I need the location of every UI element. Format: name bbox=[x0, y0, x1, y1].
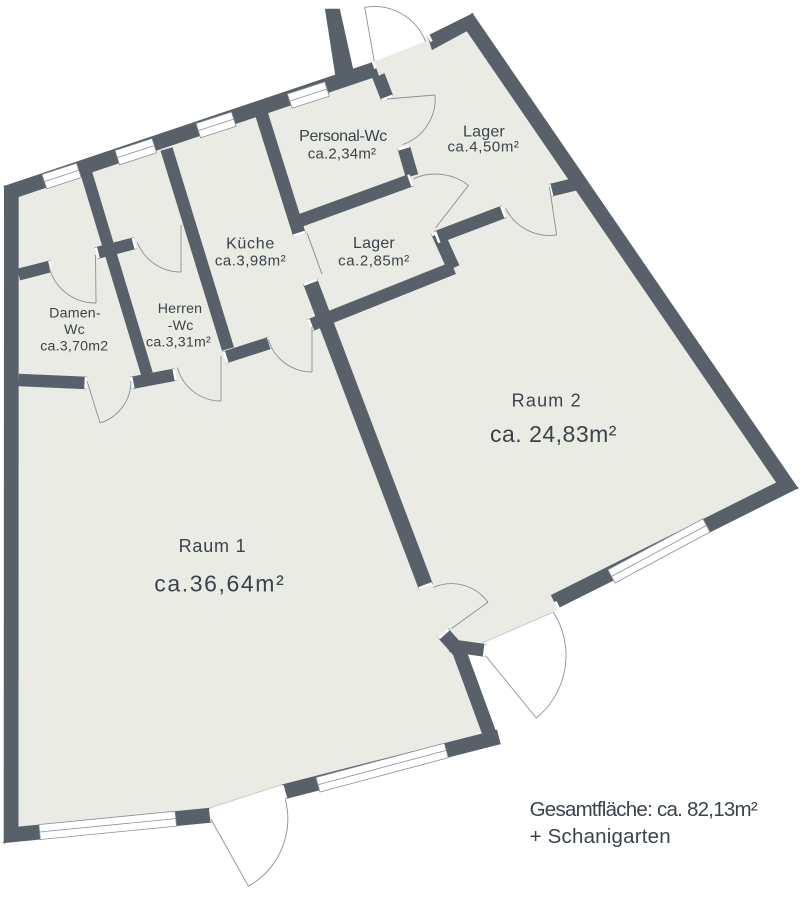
svg-text:ca.3,70m2: ca.3,70m2 bbox=[40, 339, 108, 355]
svg-text:ca.3,98m²: ca.3,98m² bbox=[215, 253, 286, 270]
svg-text:ca.2,85m²: ca.2,85m² bbox=[338, 253, 410, 270]
svg-text:Raum 1: Raum 1 bbox=[179, 536, 247, 556]
svg-text:ca. 24,83m²: ca. 24,83m² bbox=[490, 421, 617, 447]
svg-text:ca.3,31m²: ca.3,31m² bbox=[146, 335, 211, 351]
svg-text:Raum 2: Raum 2 bbox=[512, 391, 582, 411]
svg-text:ca.36,64m²: ca.36,64m² bbox=[154, 571, 285, 597]
svg-text:Küche: Küche bbox=[226, 236, 275, 253]
svg-text:-Wc: -Wc bbox=[168, 318, 194, 334]
svg-text:Gesamtfläche: ca. 82,13m²: Gesamtfläche: ca. 82,13m² bbox=[530, 798, 758, 821]
svg-text:Lager: Lager bbox=[353, 235, 395, 252]
svg-text:Damen-: Damen- bbox=[49, 306, 101, 322]
svg-text:ca.2,34m²: ca.2,34m² bbox=[308, 146, 377, 163]
svg-text:+ Schanigarten: + Schanigarten bbox=[530, 825, 671, 848]
svg-text:Personal-Wc: Personal-Wc bbox=[299, 128, 387, 145]
svg-text:ca.4,50m²: ca.4,50m² bbox=[447, 139, 519, 156]
svg-text:Wc: Wc bbox=[64, 322, 85, 338]
svg-text:Herren: Herren bbox=[158, 301, 203, 317]
